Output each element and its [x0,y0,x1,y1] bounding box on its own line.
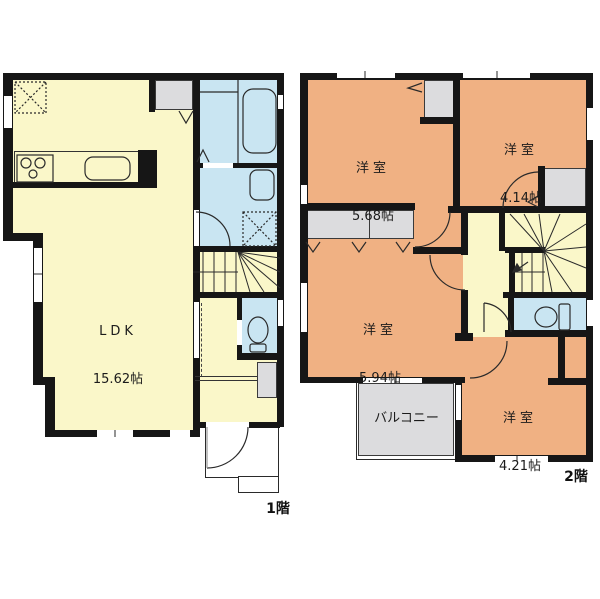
fridge-space [15,82,46,113]
ellipse [535,307,557,327]
door-arc [430,255,465,290]
ldk-size: 15.62帖 [62,372,174,388]
toilet-icon [248,317,268,352]
rect [559,304,570,330]
line [238,252,250,292]
rm: 洋室 [470,411,570,427]
stairs-up-arrow [513,262,528,272]
floor-plan-canvas: LDK 15.62帖 洋室 5.68帖 洋室 4.14帖 洋室 5.94帖 洋室… [0,0,600,599]
circle [21,158,31,168]
room-4-21-label: 洋室 4.21帖 [470,379,570,507]
div: 4.21帖 [470,459,570,475]
door-fold-mark [197,150,209,162]
ldk-label: LDK 15.62帖 [62,292,174,420]
floor1-label: 1階 [258,498,298,518]
door-arc [470,341,507,378]
polygon [513,264,521,272]
div: 5.94帖 [330,371,430,387]
room-5-94-label: 洋室 5.94帖 [330,291,430,419]
ldk-name: LDK [62,324,174,340]
rm: 洋室 [330,323,430,339]
floor2-label: 2階 [556,466,596,486]
door-fold-mark [179,111,193,123]
stairs-1f-treads [193,252,280,292]
rect [243,89,276,153]
stove-icon [17,155,53,182]
line [544,247,586,251]
div: 5.68帖 [323,209,423,225]
rm: 洋室 [323,161,423,177]
kitchen-sink-icon [85,157,130,180]
door-arc [207,427,248,468]
balcony-label: バルコニー [358,411,455,427]
door-arc [196,212,230,246]
bathtub-icon [200,80,276,163]
room-4-14-label: 洋室 4.14帖 [471,111,571,239]
toilet-icon [535,304,570,330]
door-swing-mark [408,83,422,92]
door-arc [484,303,511,332]
circle [29,170,37,178]
rect [250,344,266,352]
washer-space [243,212,276,246]
room-5-68-label: 洋室 5.68帖 [323,129,423,257]
ellipse [248,317,268,343]
circle [35,158,45,168]
div: 4.14帖 [471,191,571,207]
rm: 洋室 [471,143,571,159]
door-fold-mark [306,242,320,252]
washbasin-icon [250,170,274,200]
